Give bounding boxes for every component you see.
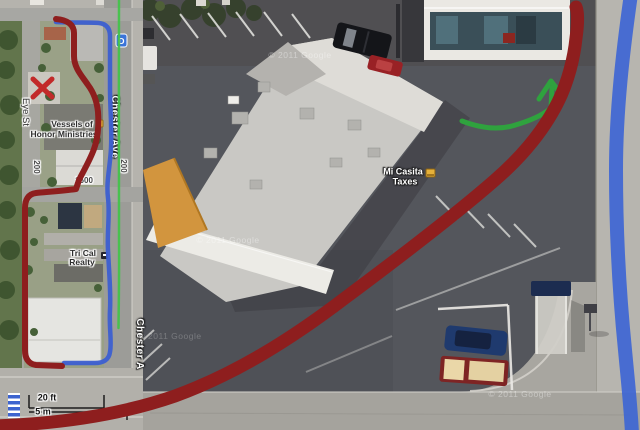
annotated-map-screenshot: Eye St Chester Ave Chester A 200 200 150… [0, 0, 640, 430]
annotation-overlay [0, 0, 640, 430]
red-route-annotation-inset [25, 19, 98, 366]
transit-route-green-line [119, 0, 120, 328]
red-x-mark [33, 79, 52, 97]
blue-edge-annotation [616, 0, 632, 430]
